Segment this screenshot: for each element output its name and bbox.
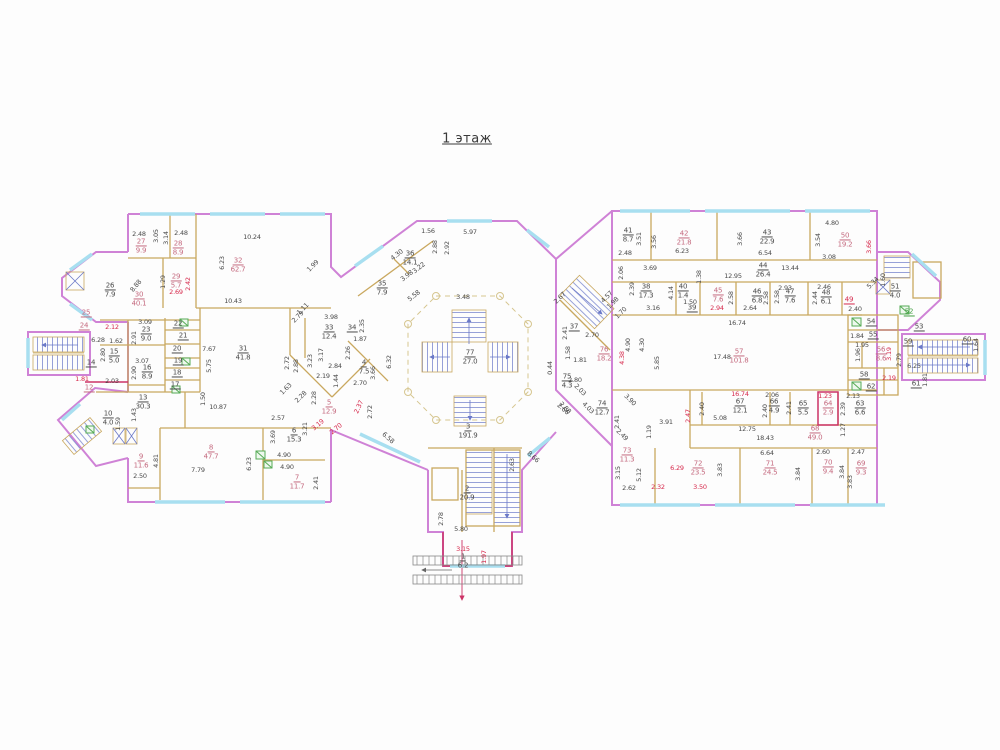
stair-icon (560, 275, 614, 328)
elevator-icon (876, 280, 890, 294)
floor-plan-page: 1 этаж (0, 0, 1000, 750)
sink-icon (852, 382, 861, 390)
fixtures (86, 306, 909, 468)
sink-icon (182, 358, 190, 365)
elevator-icon (66, 272, 84, 290)
stairs (33, 256, 978, 584)
stair-icon (33, 337, 84, 370)
sink-icon (256, 451, 265, 459)
stair-icon (884, 256, 910, 278)
entrance-steps-icon (413, 556, 522, 584)
elevator-icon (113, 428, 137, 444)
sink-icon (900, 306, 909, 314)
sink-icon (264, 461, 272, 468)
sink-icon (86, 426, 94, 433)
sink-icon (172, 386, 180, 393)
floor-plan-drawing (0, 0, 1000, 750)
sink-icon (852, 318, 861, 326)
sink-icon (180, 319, 188, 326)
stair-icon (908, 340, 978, 373)
stair-icon (422, 310, 518, 426)
stair-icon (466, 450, 520, 526)
